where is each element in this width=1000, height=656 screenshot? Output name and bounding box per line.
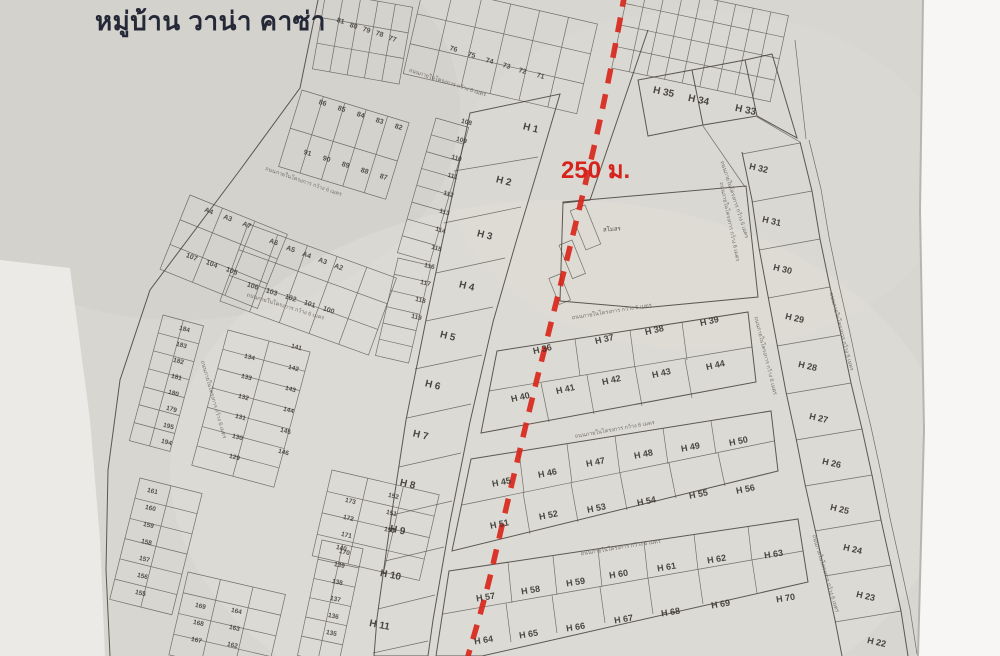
map-title: หมู่บ้าน วาน่า คาซ่า xyxy=(95,1,326,42)
paper-edge-right xyxy=(918,0,1000,656)
distance-label: 250 ม. xyxy=(561,150,630,189)
map-canvas: สโมสร xyxy=(0,0,1000,656)
subdivision-map: สโมสร xyxy=(0,0,1000,656)
